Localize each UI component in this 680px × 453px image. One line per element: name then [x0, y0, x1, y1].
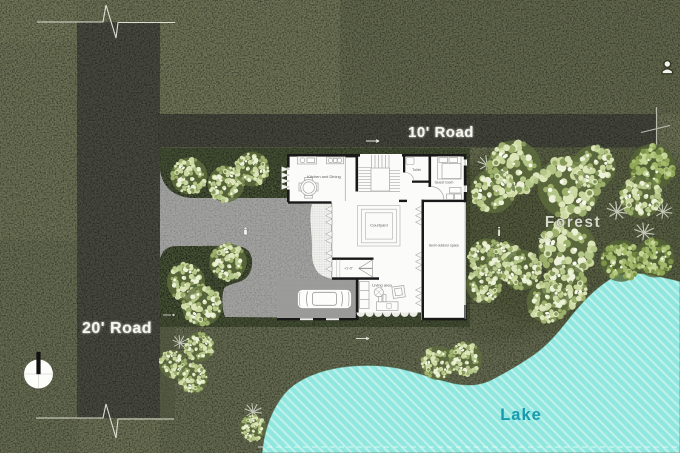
svg-text:i: i	[497, 225, 500, 239]
svg-text:Toilet: Toilet	[412, 168, 420, 172]
svg-text:Kitchen and Dining: Kitchen and Dining	[307, 174, 341, 179]
svg-text:Lake: Lake	[500, 406, 542, 424]
svg-text:Courtyard: Courtyard	[370, 223, 388, 228]
svg-text:20' Road: 20' Road	[82, 320, 152, 337]
svg-text:Guest room: Guest room	[435, 181, 454, 185]
svg-text:+1'-0": +1'-0"	[344, 267, 354, 271]
svg-text:10' Road: 10' Road	[408, 124, 474, 141]
svg-text:Living area: Living area	[372, 283, 392, 288]
svg-text:Semi outdoor space: Semi outdoor space	[429, 244, 459, 248]
svg-text:Forest: Forest	[545, 214, 601, 231]
